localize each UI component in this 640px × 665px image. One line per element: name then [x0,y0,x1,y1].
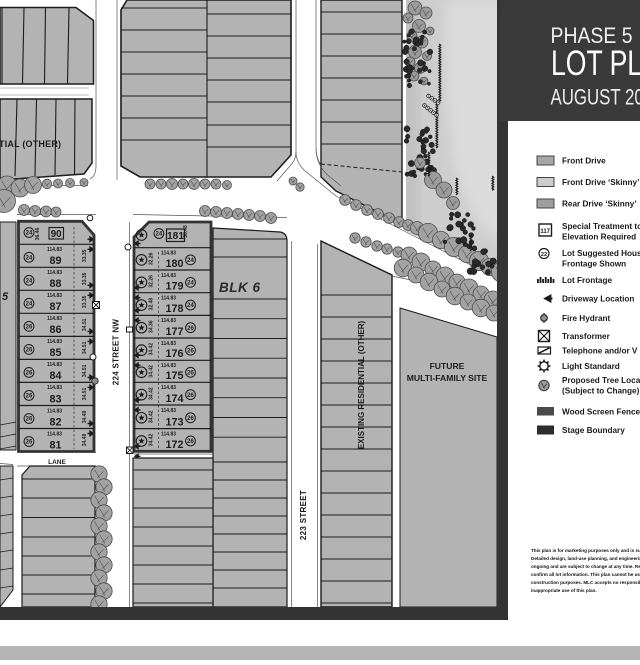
svg-text:Transformer: Transformer [562,332,611,341]
svg-text:24: 24 [187,258,194,264]
svg-text:175: 175 [165,370,183,382]
svg-text:Detailed design, land-use plan: Detailed design, land-use planning, and … [531,556,640,561]
svg-text:34.48: 34.48 [82,434,88,447]
svg-text:LOT PLAN: LOT PLAN [551,43,640,83]
svg-text:114.83: 114.83 [161,408,176,414]
svg-text:Lot Frontage: Lot Frontage [562,276,612,285]
svg-text:34.36: 34.36 [149,320,155,333]
svg-text:inappropriate use of this plan: inappropriate use of this plan. [531,588,597,593]
svg-text:86: 86 [49,324,61,336]
svg-text:22: 22 [541,252,547,258]
svg-text:TIAL (OTHER): TIAL (OTHER) [0,139,61,149]
svg-text:114.83: 114.83 [47,293,62,299]
svg-text:26: 26 [26,417,33,423]
svg-text:82: 82 [49,416,61,428]
svg-text:26: 26 [26,394,33,400]
svg-text:114.83: 114.83 [47,362,62,368]
svg-text:Light Standard: Light Standard [562,362,620,371]
svg-text:34.48: 34.48 [82,411,88,424]
svg-text:AUGUST 2017: AUGUST 2017 [551,85,640,110]
svg-text:This plan is for marketing pur: This plan is for marketing purposes only… [531,548,640,553]
svg-text:174: 174 [165,393,183,405]
svg-text:114.83: 114.83 [161,341,176,347]
svg-text:24: 24 [26,278,33,284]
svg-text:114.83: 114.83 [161,363,176,369]
svg-text:181: 181 [167,231,184,242]
svg-text:Front Drive: Front Drive [562,157,606,166]
svg-text:34.42: 34.42 [149,365,155,378]
svg-text:EXISTING RESIDENTIAL (OTHER): EXISTING RESIDENTIAL (OTHER) [357,321,366,450]
svg-text:26: 26 [187,370,194,376]
svg-text:88: 88 [49,278,61,290]
svg-text:32.26: 32.26 [149,275,155,288]
svg-text:173: 173 [165,416,183,428]
svg-text:34.42: 34.42 [149,410,155,423]
svg-text:Elevation Required: Elevation Required [562,233,636,242]
svg-text:81: 81 [49,439,61,451]
svg-text:114.83: 114.83 [161,273,176,279]
svg-text:90: 90 [51,229,62,240]
svg-text:24: 24 [26,231,33,237]
svg-text:26: 26 [187,416,194,422]
svg-text:26: 26 [187,393,194,399]
svg-text:180: 180 [165,258,183,270]
svg-text:179: 179 [165,281,183,293]
svg-text:114.83: 114.83 [47,431,62,437]
svg-text:Front Drive ‘Skinny’: Front Drive ‘Skinny’ [562,178,639,187]
svg-text:26: 26 [187,348,194,354]
svg-text:33.35: 33.35 [82,272,88,285]
svg-text:114.83: 114.83 [47,339,62,345]
svg-text:construction purposes. MLC acc: construction purposes. MLC accepts no re… [531,580,640,585]
svg-text:34.51: 34.51 [82,364,88,377]
svg-text:26: 26 [26,348,33,354]
svg-text:BLK 6: BLK 6 [219,280,261,295]
svg-text:Telephone and/or V: Telephone and/or V [562,347,638,356]
svg-text:114.83: 114.83 [47,247,62,253]
svg-text:Proposed Tree Locat: Proposed Tree Locat [562,376,640,385]
svg-text:34.42: 34.42 [149,433,155,446]
svg-text:Driveway Location: Driveway Location [562,295,634,304]
svg-text:26: 26 [26,440,33,446]
svg-text:224 STREET NW: 224 STREET NW [112,319,121,386]
svg-text:117: 117 [540,229,550,235]
svg-text:32.48: 32.48 [149,298,155,311]
svg-text:Fire Hydrant: Fire Hydrant [562,314,610,323]
svg-text:89: 89 [49,255,61,267]
svg-text:34.42: 34.42 [149,387,155,400]
svg-text:26: 26 [187,326,194,332]
svg-text:(Subject to Change): (Subject to Change) [562,387,640,396]
svg-text:MULTI-FAMILY SITE: MULTI-FAMILY SITE [407,373,488,383]
svg-text:223 STREET: 223 STREET [299,490,308,540]
svg-text:Special Treatment to: Special Treatment to [562,222,640,231]
svg-text:36.46: 36.46 [35,228,41,241]
svg-text:114.83: 114.83 [161,251,176,257]
svg-text:87: 87 [49,301,61,313]
svg-text:34.51: 34.51 [82,387,88,400]
svg-text:Rear Drive ‘Skinny’: Rear Drive ‘Skinny’ [562,200,637,209]
svg-text:177: 177 [165,326,183,338]
svg-text:Frontage Shown: Frontage Shown [562,260,626,269]
svg-text:33.35: 33.35 [82,249,88,262]
svg-text:114.83: 114.83 [161,385,176,391]
svg-text:5: 5 [2,291,9,303]
svg-text:85: 85 [49,347,61,359]
svg-text:36.48: 36.48 [183,225,189,238]
svg-text:Stage Boundary: Stage Boundary [562,426,625,435]
svg-text:114.83: 114.83 [47,316,62,322]
svg-text:24: 24 [187,303,194,309]
svg-text:33.35: 33.35 [82,295,88,308]
svg-text:confirm all lot information. T: confirm all lot information. This plan c… [531,572,640,577]
svg-text:26: 26 [26,371,33,377]
svg-text:178: 178 [165,303,183,315]
svg-text:114.83: 114.83 [161,431,176,437]
svg-text:26: 26 [187,439,194,445]
svg-text:Lot Suggested Hous: Lot Suggested Hous [562,249,640,258]
svg-text:LANE: LANE [48,459,66,466]
svg-text:172: 172 [165,439,183,451]
svg-text:ongoing and are subject to cha: ongoing and are subject to change at any… [531,564,640,569]
svg-text:114.83: 114.83 [47,408,62,414]
svg-text:84: 84 [49,370,61,382]
svg-text:FUTURE: FUTURE [430,361,465,371]
svg-text:24: 24 [26,301,33,307]
svg-text:114.83: 114.83 [47,385,62,391]
svg-text:24: 24 [156,232,163,238]
svg-text:114.83: 114.83 [47,270,62,276]
svg-text:32.26: 32.26 [149,252,155,265]
svg-text:83: 83 [49,393,61,405]
svg-text:24: 24 [187,281,194,287]
svg-text:114.83: 114.83 [161,296,176,302]
svg-text:24: 24 [26,255,33,261]
svg-text:26: 26 [26,325,33,331]
svg-text:34.42: 34.42 [149,343,155,356]
svg-text:34.51: 34.51 [82,318,88,331]
svg-text:114.83: 114.83 [161,318,176,324]
svg-text:176: 176 [165,348,183,360]
svg-text:34.51: 34.51 [82,341,88,354]
svg-text:Wood Screen Fence: Wood Screen Fence [562,408,640,417]
